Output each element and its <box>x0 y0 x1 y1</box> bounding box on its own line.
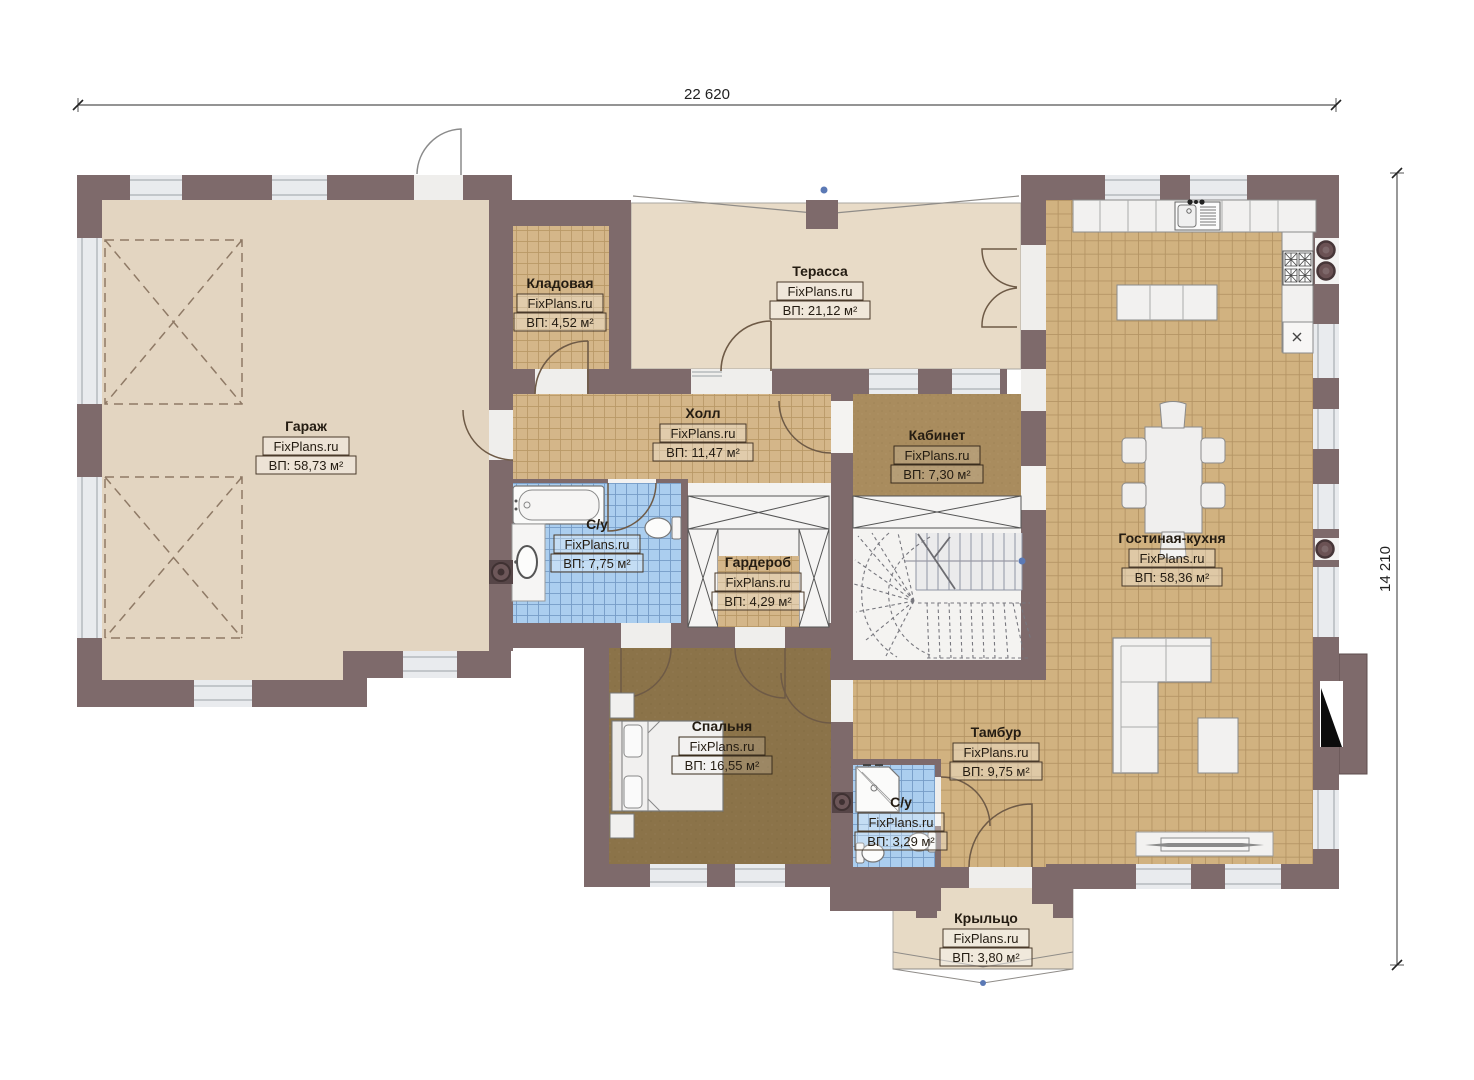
svg-text:Терасса: Терасса <box>792 263 848 279</box>
svg-text:FixPlans.ru: FixPlans.ru <box>725 575 790 590</box>
svg-text:FixPlans.ru: FixPlans.ru <box>953 931 1018 946</box>
svg-text:Спальня: Спальня <box>692 718 752 734</box>
svg-text:Холл: Холл <box>685 405 720 421</box>
svg-text:Гараж: Гараж <box>285 418 328 434</box>
svg-text:С/у: С/у <box>586 516 608 532</box>
svg-text:FixPlans.ru: FixPlans.ru <box>963 745 1028 760</box>
svg-text:ВП: 4,29 м²: ВП: 4,29 м² <box>724 594 792 609</box>
svg-text:FixPlans.ru: FixPlans.ru <box>273 439 338 454</box>
svg-text:FixPlans.ru: FixPlans.ru <box>787 284 852 299</box>
svg-text:FixPlans.ru: FixPlans.ru <box>670 426 735 441</box>
svg-text:С/у: С/у <box>890 794 912 810</box>
svg-text:ВП: 7,75 м²: ВП: 7,75 м² <box>563 556 631 571</box>
svg-text:22 620: 22 620 <box>684 86 730 103</box>
svg-text:ВП: 16,55 м²: ВП: 16,55 м² <box>685 758 760 773</box>
svg-text:FixPlans.ru: FixPlans.ru <box>564 537 629 552</box>
svg-text:Крыльцо: Крыльцо <box>954 910 1018 926</box>
svg-text:FixPlans.ru: FixPlans.ru <box>868 815 933 830</box>
svg-text:FixPlans.ru: FixPlans.ru <box>1139 551 1204 566</box>
svg-text:ВП: 3,80 м²: ВП: 3,80 м² <box>952 950 1020 965</box>
svg-text:Кладовая: Кладовая <box>526 275 593 291</box>
svg-text:ВП: 7,30 м²: ВП: 7,30 м² <box>903 467 971 482</box>
svg-text:ВП: 58,36 м²: ВП: 58,36 м² <box>1135 570 1210 585</box>
svg-text:ВП: 21,12 м²: ВП: 21,12 м² <box>783 303 858 318</box>
svg-text:Гостиная-кухня: Гостиная-кухня <box>1118 530 1225 546</box>
svg-text:ВП: 11,47 м²: ВП: 11,47 м² <box>666 445 740 460</box>
svg-text:Гардероб: Гардероб <box>725 554 792 570</box>
svg-text:ВП: 58,73 м²: ВП: 58,73 м² <box>269 458 344 473</box>
svg-text:Кабинет: Кабинет <box>909 427 966 443</box>
svg-text:FixPlans.ru: FixPlans.ru <box>904 448 969 463</box>
svg-text:FixPlans.ru: FixPlans.ru <box>689 739 754 754</box>
svg-text:ВП: 3,29 м²: ВП: 3,29 м² <box>867 834 935 849</box>
svg-text:ВП: 4,52 м²: ВП: 4,52 м² <box>526 315 594 330</box>
svg-text:14 210: 14 210 <box>1377 546 1394 592</box>
svg-text:ВП: 9,75 м²: ВП: 9,75 м² <box>962 764 1030 779</box>
svg-text:Тамбур: Тамбур <box>971 724 1022 740</box>
svg-text:FixPlans.ru: FixPlans.ru <box>527 296 592 311</box>
